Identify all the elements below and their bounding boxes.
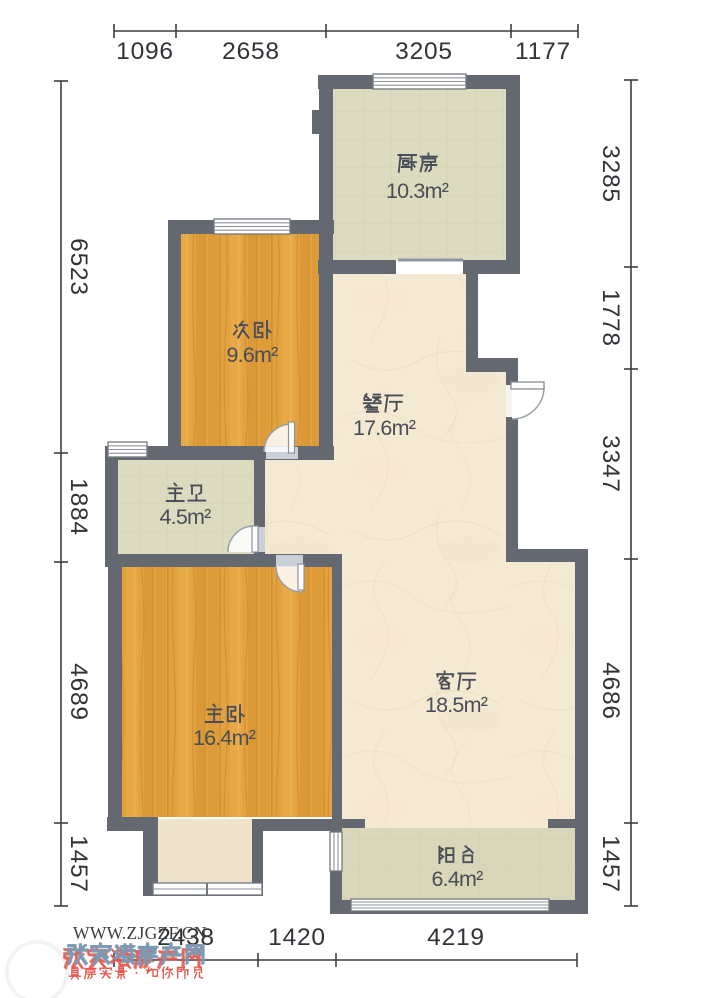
svg-text:1457: 1457 — [597, 835, 624, 893]
svg-text:4219: 4219 — [427, 924, 485, 951]
svg-text:16.4m²: 16.4m² — [193, 726, 256, 750]
svg-text:3205: 3205 — [395, 38, 453, 65]
svg-text:1177: 1177 — [515, 38, 571, 65]
svg-text:18.5m²: 18.5m² — [425, 693, 488, 717]
svg-text:WWW.ZJGZF.CN: WWW.ZJGZF.CN — [73, 923, 207, 943]
svg-text:6.4m²: 6.4m² — [432, 867, 484, 891]
svg-text:1884: 1884 — [65, 478, 92, 536]
svg-text:4.5m²: 4.5m² — [160, 505, 212, 529]
svg-text:6523: 6523 — [65, 238, 92, 296]
svg-text:1420: 1420 — [268, 924, 326, 951]
svg-text:9.6m²: 9.6m² — [227, 343, 279, 367]
svg-text:3285: 3285 — [597, 145, 624, 203]
svg-text:4689: 4689 — [65, 663, 92, 721]
svg-text:1778: 1778 — [597, 289, 624, 347]
svg-text:10.3m²: 10.3m² — [386, 179, 449, 203]
svg-text:4686: 4686 — [597, 662, 624, 720]
svg-text:17.6m²: 17.6m² — [353, 416, 416, 440]
svg-text:3347: 3347 — [597, 435, 624, 493]
svg-text:1096: 1096 — [116, 38, 174, 65]
svg-text:2658: 2658 — [222, 38, 280, 65]
svg-text:1457: 1457 — [65, 835, 92, 893]
